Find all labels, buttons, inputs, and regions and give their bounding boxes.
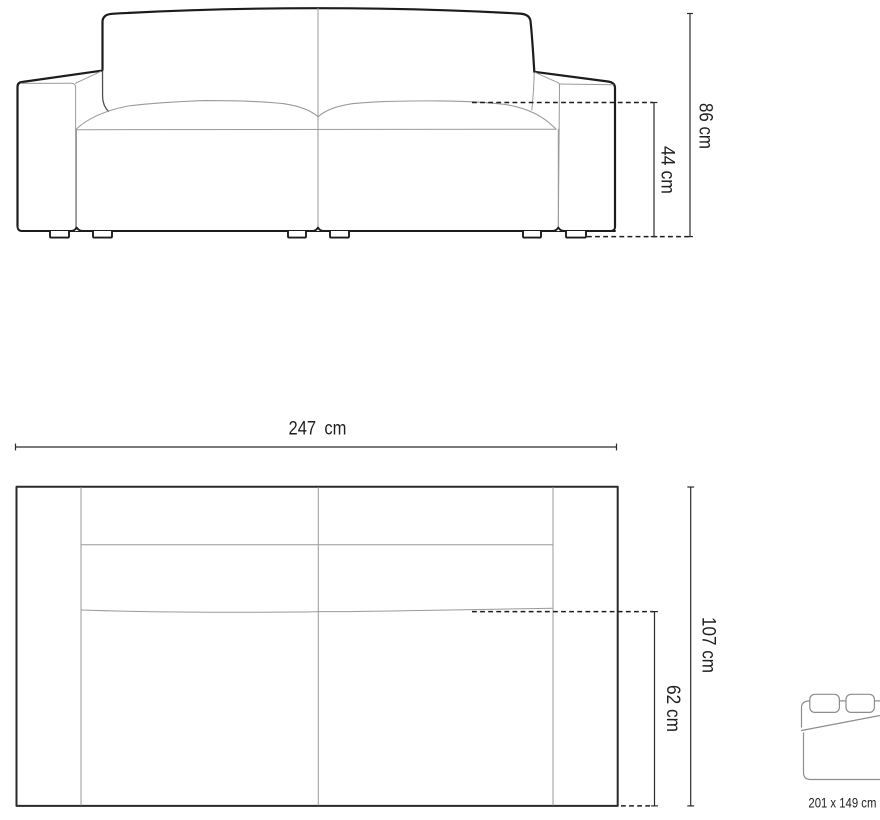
svg-text:86 cm: 86 cm <box>695 103 716 149</box>
svg-text:44 cm: 44 cm <box>657 146 678 194</box>
svg-text:247 cm: 247 cm <box>289 418 347 439</box>
svg-text:107 cm: 107 cm <box>698 617 719 673</box>
svg-text:62 cm: 62 cm <box>662 685 683 732</box>
svg-text:201 x 149 cm: 201 x 149 cm <box>808 794 876 810</box>
